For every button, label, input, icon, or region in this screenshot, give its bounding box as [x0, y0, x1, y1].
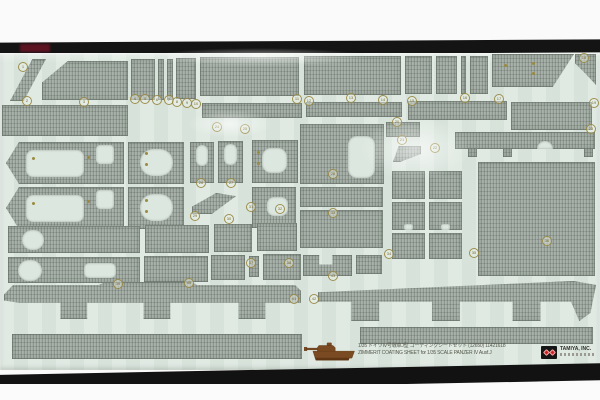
part-number-marker: 37: [246, 258, 256, 268]
plastic-wrap-glare: [150, 48, 370, 66]
die-cut-hole: [140, 194, 173, 221]
sheet-piece: [356, 255, 382, 274]
part-number-marker: 12: [304, 96, 314, 106]
sheet-piece: [257, 223, 297, 251]
part-number-marker: 3: [79, 97, 89, 107]
part-number-marker: 18: [579, 53, 589, 63]
punch-dot: [145, 163, 148, 166]
part-number-marker: 16: [460, 93, 470, 103]
caption-strip: 1/35 ドイツⅣ号戦車J型 コーティングシートセット (12650) 1142…: [302, 340, 598, 364]
die-cut-hole: [22, 230, 44, 250]
sheet-piece: [263, 254, 301, 280]
sheet-piece: [214, 224, 252, 252]
sheet-piece: [408, 101, 507, 120]
sheet-piece: [584, 148, 593, 157]
caption-line-2: ZIMMERIT COATING SHEET for 1/35 SCALE PA…: [358, 350, 538, 357]
sheet-piece: [145, 225, 209, 253]
tamiya-logo: [541, 346, 557, 359]
part-number-marker: 15: [407, 96, 417, 106]
sheet-piece: [144, 256, 208, 282]
part-number-marker: 35: [469, 248, 479, 258]
sheet-piece: [392, 202, 425, 230]
plastic-wrap-glare: [188, 110, 272, 138]
die-cut-hole: [537, 141, 553, 149]
punch-dot: [257, 162, 260, 165]
die-cut-hole: [18, 260, 42, 281]
sheet-piece: [511, 102, 592, 130]
sheet-piece: [6, 187, 124, 229]
sheet-piece: [158, 59, 164, 100]
part-number-marker: 1: [18, 62, 28, 72]
sheet-piece: [12, 334, 302, 359]
part-number-marker: 32: [275, 204, 285, 214]
sheet-piece: [455, 132, 595, 149]
part-number-marker: 38: [284, 258, 294, 268]
part-number-marker: 4: [130, 94, 140, 104]
sheet-piece: [461, 56, 466, 94]
plastic-wrap-glare: [360, 118, 470, 180]
die-cut-hole: [404, 224, 413, 230]
punch-dot: [32, 157, 35, 160]
sheet-piece: [392, 233, 425, 259]
sheet-piece: [503, 148, 512, 157]
part-number-marker: 2: [22, 96, 32, 106]
part-number-marker: 40: [184, 278, 194, 288]
part-number-marker: 14: [378, 95, 388, 105]
part-number-marker: 23: [586, 124, 596, 134]
part-number-marker: 31: [246, 202, 256, 212]
part-number-marker: 42: [309, 294, 319, 304]
part-number-marker: 34: [384, 249, 394, 259]
part-number-marker: 28: [328, 169, 338, 179]
part-number-marker: 33: [328, 208, 338, 218]
punch-dot: [145, 210, 148, 213]
sheet-piece: [300, 210, 383, 248]
sheet-piece: [436, 56, 457, 94]
punch-dot: [532, 62, 535, 65]
sheet-piece: [6, 142, 124, 184]
sheet-piece: [470, 56, 488, 94]
photo-bottom-margin: [0, 384, 600, 400]
part-number-marker: 43: [328, 271, 338, 281]
brand-name: TAMIYA, INC.: [560, 346, 598, 352]
punch-dot: [32, 202, 35, 205]
die-cut-hole: [96, 145, 114, 164]
die-cut-hole: [26, 150, 84, 177]
die-cut-hole: [262, 148, 287, 173]
sheet-piece: [306, 102, 402, 117]
die-cut-hole: [224, 144, 237, 165]
tank-silhouette-icon: [304, 342, 356, 362]
part-number-marker: 11: [292, 94, 302, 104]
film-edge-red-segment: [20, 44, 50, 52]
part-number-marker: 39: [113, 279, 123, 289]
die-cut-hole: [441, 224, 450, 230]
part-number-marker: 6: [152, 95, 162, 105]
punch-dot: [145, 152, 148, 155]
punch-dot: [87, 200, 90, 203]
die-cut-hole: [84, 263, 116, 278]
sheet-piece: [252, 187, 296, 228]
sheet-piece: [300, 187, 383, 207]
sheet-piece: [478, 162, 595, 276]
punch-dot: [257, 151, 260, 154]
die-cut-hole: [26, 195, 84, 222]
punch-dot: [145, 199, 148, 202]
part-number-marker: 41: [289, 294, 299, 304]
brand-subtext-bar: [560, 353, 594, 356]
part-number-marker: 30: [224, 214, 234, 224]
sheet-piece: [429, 202, 462, 230]
sheet-piece: [211, 255, 245, 280]
part-number-marker: 17: [494, 94, 504, 104]
photo-of-zimmerit-sheet: 1234567891011121314151617181920212223242…: [0, 0, 600, 400]
part-number-marker: 13: [346, 93, 356, 103]
sheet-piece: [128, 142, 184, 184]
die-cut-hole: [96, 190, 114, 209]
sheet-piece: [167, 59, 173, 100]
sheet-piece: [190, 142, 214, 183]
sheet-piece: [128, 187, 184, 229]
sheet-piece: [429, 233, 462, 259]
part-number-marker: 36: [542, 236, 552, 246]
die-cut-hole: [196, 145, 208, 166]
part-number-marker: 26: [196, 178, 206, 188]
part-number-marker: 19: [589, 98, 599, 108]
part-number-marker: 5: [140, 94, 150, 104]
part-number-marker: 27: [226, 178, 236, 188]
part-number-marker: 29: [190, 211, 200, 221]
part-number-marker: 10: [191, 99, 201, 109]
punch-dot: [87, 156, 90, 159]
sheet-piece: [2, 105, 128, 136]
sheet-piece: [218, 141, 243, 183]
caption-line-1: 1/35 ドイツⅣ号戦車J型 コーティングシートセット (12650) 1142…: [358, 343, 538, 350]
sheet-piece: [8, 226, 140, 253]
part-number-marker: 8: [172, 97, 182, 107]
photo-top-margin: [0, 0, 600, 43]
punch-dot: [504, 64, 507, 67]
sheet-piece: [405, 56, 432, 94]
punch-dot: [532, 72, 535, 75]
